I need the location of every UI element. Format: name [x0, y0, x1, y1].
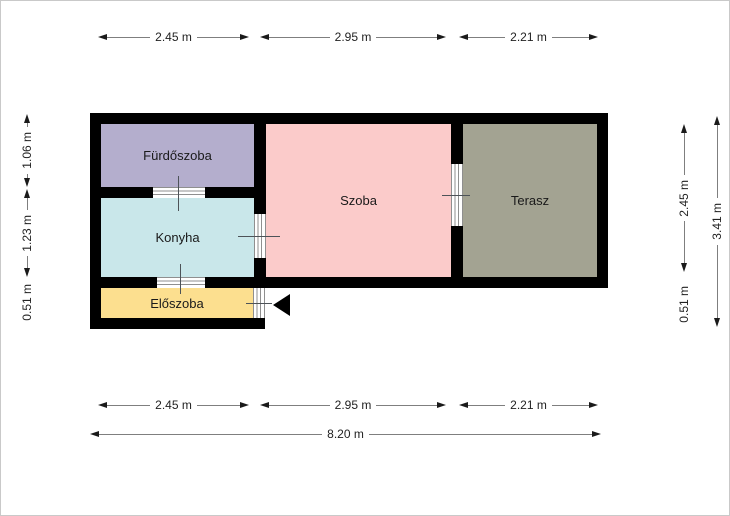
dim-top-2: 2.95 m — [260, 30, 446, 44]
dim-right-2: 0.51 m — [677, 280, 691, 328]
door-konyha-szoba-axis — [238, 236, 280, 237]
door-szoba-terasz-axis — [442, 195, 470, 196]
floorplan-canvas: Fürdőszoba Konyha Előszoba Szoba Terasz … — [0, 0, 730, 516]
door-furdoszoba-konyha — [153, 187, 205, 198]
dim-bottom-1: 2.45 m — [98, 398, 249, 412]
dim-bottom-2: 2.95 m — [260, 398, 446, 412]
dim-right-1: 2.45 m — [677, 124, 691, 272]
room-label-eloszoba: Előszoba — [150, 296, 203, 311]
door-entrance-axis — [246, 303, 272, 304]
room-label-furdoszoba: Fürdőszoba — [143, 148, 212, 163]
wall-top — [90, 113, 608, 124]
dim-top-3: 2.21 m — [459, 30, 598, 44]
dim-top-1: 2.45 m — [98, 30, 249, 44]
room-label-konyha: Konyha — [155, 230, 199, 245]
dim-left-1: 1.06 m — [20, 114, 34, 187]
wall-annex-bottom — [90, 318, 264, 329]
door-furdoszoba-konyha-axis — [178, 176, 179, 211]
room-terasz: Terasz — [463, 124, 597, 277]
dim-bottom-3: 2.21 m — [459, 398, 598, 412]
dim-total-width: 8.20 m — [90, 427, 601, 441]
room-eloszoba: Előszoba — [101, 288, 253, 318]
door-konyha-eloszoba-axis — [180, 264, 181, 294]
door-konyha-eloszoba — [157, 277, 205, 288]
room-szoba: Szoba — [266, 124, 451, 277]
room-label-terasz: Terasz — [511, 193, 549, 208]
wall-left — [90, 113, 101, 329]
dim-left-3: 0.51 m — [20, 278, 34, 326]
wall-left-section-szoba — [254, 113, 266, 288]
dim-total-height: 3.41 m — [710, 116, 724, 327]
entrance-arrow-icon — [273, 294, 290, 316]
room-label-szoba: Szoba — [340, 193, 377, 208]
wall-right — [597, 113, 608, 288]
dim-left-2: 1.23 m — [20, 189, 34, 277]
